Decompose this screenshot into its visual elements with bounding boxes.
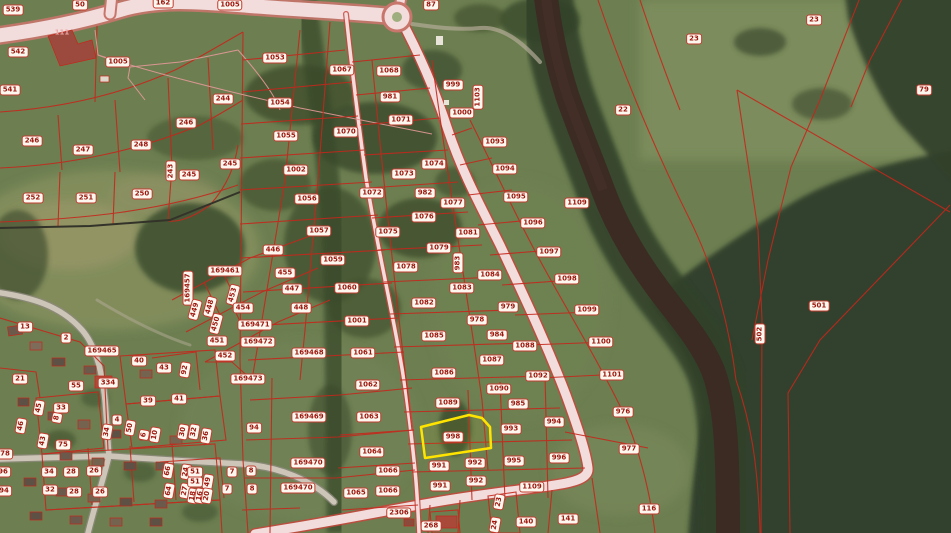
parcel-label-243[interactable]: 243 (166, 161, 177, 182)
parcel-label-32[interactable]: 32 (187, 423, 201, 440)
parcel-label-55[interactable]: 55 (68, 381, 84, 392)
parcel-label-977[interactable]: 977 (619, 444, 640, 455)
parcel-label-1096[interactable]: 1096 (520, 218, 545, 229)
parcel-label-169470[interactable]: 169470 (280, 483, 315, 494)
parcel-label-1055[interactable]: 1055 (273, 131, 298, 142)
parcel-label-94[interactable]: 94 (0, 486, 12, 497)
parcel-label-1077[interactable]: 1077 (440, 198, 465, 209)
parcel-label-1082[interactable]: 1082 (411, 298, 436, 309)
parcel-label-1056[interactable]: 1056 (294, 194, 319, 205)
parcel-label-1070[interactable]: 1070 (333, 127, 358, 138)
parcel-label-268[interactable]: 268 (421, 521, 442, 532)
parcel-label-976[interactable]: 976 (613, 407, 634, 418)
parcel-label-51[interactable]: 51 (187, 477, 203, 488)
parcel-label-501[interactable]: 501 (809, 301, 830, 312)
parcel-label-1060[interactable]: 1060 (334, 283, 359, 294)
parcel-label-26[interactable]: 26 (86, 466, 102, 477)
parcel-label-993[interactable]: 993 (501, 424, 522, 435)
parcel-label-79[interactable]: 79 (916, 85, 932, 96)
parcel-label-1063[interactable]: 1063 (356, 412, 381, 423)
parcel-label-1097[interactable]: 1097 (536, 247, 561, 258)
parcel-label-1109[interactable]: 1109 (564, 198, 589, 209)
parcel-label-1053[interactable]: 1053 (262, 53, 287, 64)
parcel-label-246[interactable]: 246 (176, 118, 197, 129)
parcel-label-169465[interactable]: 169465 (84, 346, 119, 357)
parcel-label-75[interactable]: 75 (55, 440, 71, 451)
parcel-label-455[interactable]: 455 (275, 268, 296, 279)
parcel-label-116[interactable]: 116 (639, 504, 660, 515)
parcel-label-23[interactable]: 23 (686, 34, 702, 45)
parcel-label-66[interactable]: 66 (161, 462, 175, 479)
map-viewport[interactable]: 5395016210055425411111005244246246247248… (0, 0, 951, 533)
parcel-label-244[interactable]: 244 (213, 94, 234, 105)
parcel-label-1087[interactable]: 1087 (479, 355, 504, 366)
parcel-label-979[interactable]: 979 (498, 302, 519, 313)
parcel-label-1066[interactable]: 1066 (375, 466, 400, 477)
parcel-label-998[interactable]: 998 (443, 432, 464, 443)
parcel-label-451[interactable]: 451 (207, 336, 228, 347)
parcel-label-169468[interactable]: 169468 (291, 348, 326, 359)
parcel-label-1084[interactable]: 1084 (477, 270, 502, 281)
parcel-label-92[interactable]: 92 (178, 361, 192, 378)
parcel-label-39[interactable]: 39 (140, 396, 156, 407)
parcel-label-996[interactable]: 996 (549, 453, 570, 464)
parcel-label-141[interactable]: 141 (558, 514, 579, 525)
parcel-label-999[interactable]: 999 (443, 80, 464, 91)
parcel-label-8[interactable]: 8 (51, 412, 64, 425)
parcel-label-87[interactable]: 87 (423, 0, 439, 11)
parcel-label-1054[interactable]: 1054 (267, 98, 292, 109)
parcel-label-1092[interactable]: 1092 (525, 371, 550, 382)
parcel-label-994[interactable]: 994 (544, 417, 565, 428)
parcel-label-251[interactable]: 251 (76, 193, 97, 204)
parcel-label-992[interactable]: 992 (465, 458, 486, 469)
parcel-label-23[interactable]: 23 (806, 15, 822, 26)
parcel-label-1064[interactable]: 1064 (359, 447, 384, 458)
parcel-label-446[interactable]: 446 (263, 245, 284, 256)
parcel-label-245[interactable]: 245 (179, 170, 200, 181)
parcel-label-1078[interactable]: 1078 (393, 262, 418, 273)
parcel-label-50[interactable]: 50 (123, 419, 137, 436)
parcel-label-2[interactable]: 2 (61, 333, 72, 344)
parcel-label-246[interactable]: 246 (22, 136, 43, 147)
parcel-label-991[interactable]: 991 (429, 461, 450, 472)
parcel-label-94[interactable]: 94 (246, 423, 262, 434)
parcel-label-8[interactable]: 8 (247, 484, 258, 495)
parcel-label-992[interactable]: 992 (466, 476, 487, 487)
parcel-label-50[interactable]: 50 (72, 0, 88, 11)
parcel-label-1090[interactable]: 1090 (486, 384, 511, 395)
parcel-label-991[interactable]: 991 (430, 481, 451, 492)
parcel-label-978[interactable]: 978 (467, 315, 488, 326)
parcel-label-1005[interactable]: 1005 (217, 0, 242, 11)
parcel-label-7[interactable]: 7 (222, 484, 233, 495)
parcel-label-502[interactable]: 502 (755, 324, 766, 345)
parcel-label-984[interactable]: 984 (487, 330, 508, 341)
parcel-label-96[interactable]: 96 (0, 467, 11, 478)
parcel-label-layer: 5395016210055425411111005244246246247248… (0, 0, 951, 533)
parcel-label-1099[interactable]: 1099 (574, 305, 599, 316)
parcel-label-1005[interactable]: 1005 (105, 57, 130, 68)
parcel-label-7[interactable]: 7 (227, 467, 238, 478)
parcel-label-22[interactable]: 22 (615, 105, 631, 116)
parcel-label-1071[interactable]: 1071 (388, 115, 413, 126)
parcel-label-32[interactable]: 32 (42, 485, 58, 496)
parcel-label-169472[interactable]: 169472 (240, 337, 275, 348)
parcel-label-448[interactable]: 448 (291, 303, 312, 314)
parcel-label-36[interactable]: 36 (199, 427, 213, 444)
parcel-label-28[interactable]: 28 (66, 487, 82, 498)
parcel-label-2306[interactable]: 2306 (386, 508, 411, 519)
parcel-label-245[interactable]: 245 (220, 159, 241, 170)
parcel-label-169471[interactable]: 169471 (237, 320, 272, 331)
parcel-label-995[interactable]: 995 (504, 456, 525, 467)
parcel-label-1095[interactable]: 1095 (503, 192, 528, 203)
parcel-label-78[interactable]: 78 (0, 449, 13, 460)
parcel-label-1068[interactable]: 1068 (376, 66, 401, 77)
parcel-label-162[interactable]: 162 (153, 0, 174, 9)
parcel-label-1075[interactable]: 1075 (375, 227, 400, 238)
parcel-label-981[interactable]: 981 (380, 92, 401, 103)
parcel-label-1089[interactable]: 1089 (435, 398, 460, 409)
parcel-label-4[interactable]: 4 (112, 415, 123, 426)
parcel-label-1002[interactable]: 1002 (283, 165, 308, 176)
parcel-label-43[interactable]: 43 (36, 432, 50, 449)
parcel-label-248[interactable]: 248 (131, 140, 152, 151)
parcel-label-1057[interactable]: 1057 (306, 226, 331, 237)
parcel-label-247[interactable]: 247 (73, 145, 94, 156)
parcel-label-1067[interactable]: 1067 (329, 65, 354, 76)
parcel-label-111[interactable]: 111 (53, 29, 72, 38)
parcel-label-1081[interactable]: 1081 (455, 228, 480, 239)
parcel-label-41[interactable]: 41 (171, 394, 187, 405)
parcel-label-1001[interactable]: 1001 (344, 316, 369, 327)
parcel-label-1100[interactable]: 1100 (588, 337, 613, 348)
parcel-label-539[interactable]: 539 (3, 5, 24, 16)
parcel-label-542[interactable]: 542 (8, 47, 29, 58)
parcel-label-452[interactable]: 452 (215, 351, 236, 362)
parcel-label-43[interactable]: 43 (156, 363, 172, 374)
parcel-label-34[interactable]: 34 (100, 423, 114, 440)
parcel-label-1065[interactable]: 1065 (343, 488, 368, 499)
parcel-label-169461[interactable]: 169461 (207, 266, 242, 277)
parcel-label-1061[interactable]: 1061 (350, 348, 375, 359)
parcel-label-1109[interactable]: 1109 (519, 482, 544, 493)
parcel-label-1074[interactable]: 1074 (421, 159, 446, 170)
parcel-label-1059[interactable]: 1059 (320, 255, 345, 266)
parcel-label-13[interactable]: 13 (17, 322, 33, 333)
parcel-label-23[interactable]: 23 (492, 493, 506, 510)
parcel-label-64[interactable]: 64 (162, 482, 176, 499)
parcel-label-1073[interactable]: 1073 (391, 169, 416, 180)
parcel-label-1103[interactable]: 1103 (473, 84, 484, 109)
parcel-label-1086[interactable]: 1086 (431, 368, 456, 379)
parcel-label-169470[interactable]: 169470 (290, 458, 325, 469)
parcel-label-1101[interactable]: 1101 (599, 370, 624, 381)
parcel-label-1094[interactable]: 1094 (492, 164, 517, 175)
parcel-label-1079[interactable]: 1079 (426, 243, 451, 254)
parcel-label-1000[interactable]: 1000 (449, 108, 474, 119)
parcel-label-1066[interactable]: 1066 (375, 486, 400, 497)
parcel-label-982[interactable]: 982 (415, 188, 436, 199)
parcel-label-454[interactable]: 454 (233, 303, 254, 314)
parcel-label-1083[interactable]: 1083 (449, 283, 474, 294)
parcel-label-983[interactable]: 983 (453, 253, 464, 274)
parcel-label-20[interactable]: 20 (200, 487, 214, 504)
parcel-label-250[interactable]: 250 (132, 189, 153, 200)
parcel-label-1098[interactable]: 1098 (554, 274, 579, 285)
parcel-label-334[interactable]: 334 (98, 378, 119, 389)
parcel-label-21[interactable]: 21 (12, 374, 28, 385)
parcel-label-1072[interactable]: 1072 (359, 188, 384, 199)
parcel-label-8[interactable]: 8 (246, 466, 257, 477)
parcel-label-24[interactable]: 24 (488, 516, 502, 533)
parcel-label-1088[interactable]: 1088 (512, 341, 537, 352)
parcel-label-1062[interactable]: 1062 (355, 380, 380, 391)
parcel-label-541[interactable]: 541 (0, 85, 20, 96)
parcel-label-40[interactable]: 40 (131, 356, 147, 367)
parcel-label-45[interactable]: 45 (32, 399, 46, 416)
parcel-label-985[interactable]: 985 (508, 399, 529, 410)
parcel-label-252[interactable]: 252 (23, 193, 44, 204)
parcel-label-34[interactable]: 34 (41, 467, 57, 478)
parcel-label-140[interactable]: 140 (516, 517, 537, 528)
parcel-label-26[interactable]: 26 (92, 487, 108, 498)
parcel-label-10[interactable]: 10 (148, 426, 162, 443)
parcel-label-28[interactable]: 28 (63, 467, 79, 478)
parcel-label-1093[interactable]: 1093 (482, 137, 507, 148)
parcel-label-1076[interactable]: 1076 (411, 212, 436, 223)
parcel-label-46[interactable]: 46 (14, 417, 28, 434)
parcel-label-169469[interactable]: 169469 (291, 412, 326, 423)
parcel-label-169473[interactable]: 169473 (230, 374, 265, 385)
parcel-label-1085[interactable]: 1085 (421, 331, 446, 342)
parcel-label-447[interactable]: 447 (282, 284, 303, 295)
